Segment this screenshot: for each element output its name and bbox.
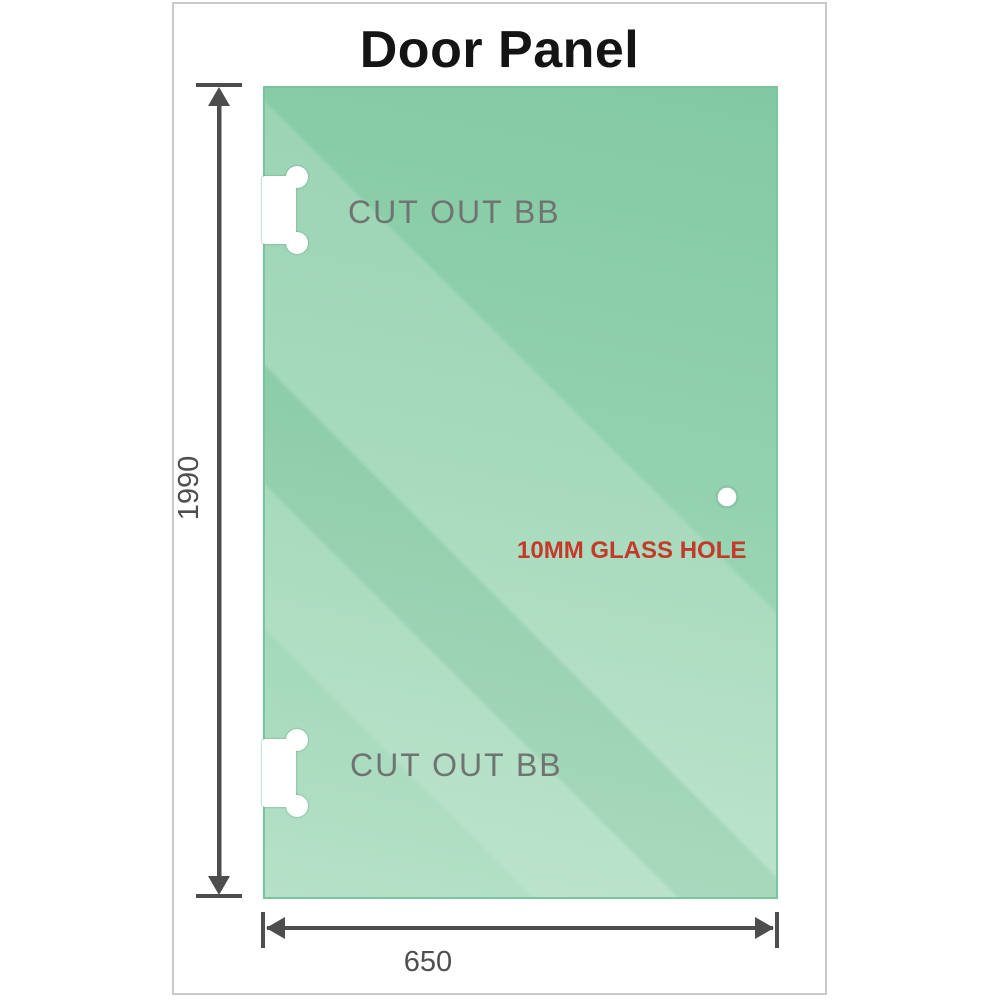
width-dimension-right-tick xyxy=(775,912,779,948)
height-dimension-top-tick xyxy=(196,83,242,87)
cutout-bottom-label: CUT OUT BB xyxy=(350,749,563,781)
width-dimension-line xyxy=(261,912,779,948)
hinge-cutout-top-upper-lobe xyxy=(286,166,308,188)
glass-hole xyxy=(717,487,738,508)
hinge-cutout-bottom-body xyxy=(262,739,296,807)
cutout-top-label: CUT OUT BB xyxy=(348,196,561,228)
hinge-cutout-top-body xyxy=(262,176,296,244)
height-dimension-value: 1990 xyxy=(173,438,205,538)
height-dimension-up-arrow-icon xyxy=(208,87,230,106)
height-dimension-down-arrow-icon xyxy=(208,876,230,895)
diagram-overlay xyxy=(0,0,1000,1000)
width-dimension-left-tick xyxy=(261,912,265,948)
width-dimension-shaft xyxy=(267,926,773,930)
width-dimension-left-arrow-icon xyxy=(266,917,285,939)
hinge-cutout-bottom-lower-lobe xyxy=(286,795,308,817)
width-dimension-value: 650 xyxy=(378,946,478,978)
hinge-cutout-top-lower-lobe xyxy=(286,232,308,254)
hinge-cutout-bottom xyxy=(262,729,308,817)
hinge-cutout-bottom-upper-lobe xyxy=(286,729,308,751)
glass-hole-label: 10MM GLASS HOLE xyxy=(517,539,746,563)
height-dimension-shaft xyxy=(217,102,222,880)
product-diagram-page: Door Panel xyxy=(0,0,1000,1000)
hinge-cutout-top xyxy=(262,166,308,254)
width-dimension-right-arrow-icon xyxy=(755,917,774,939)
